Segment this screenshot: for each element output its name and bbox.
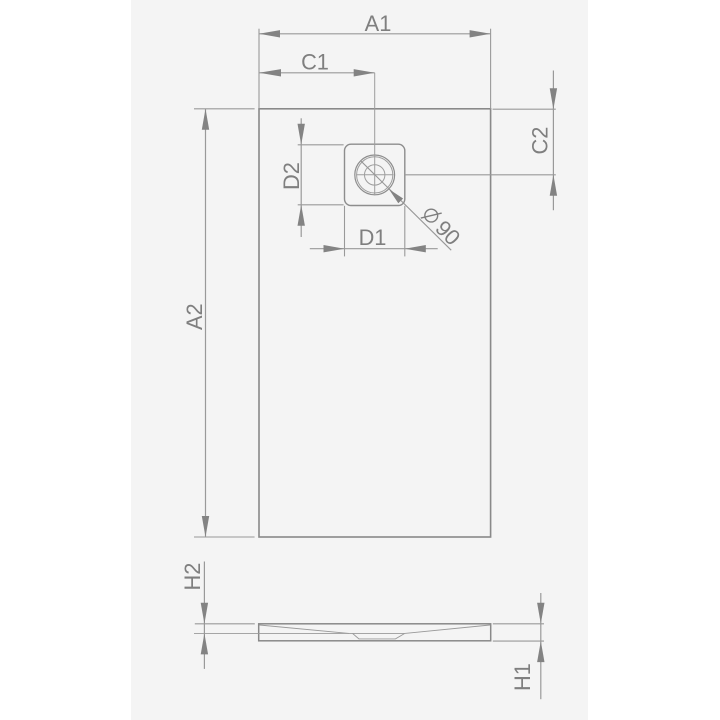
- svg-text:D2: D2: [279, 162, 304, 190]
- svg-text:A2: A2: [182, 303, 207, 330]
- svg-text:C1: C1: [301, 50, 329, 75]
- svg-text:H2: H2: [180, 563, 205, 591]
- svg-text:A1: A1: [365, 11, 392, 36]
- svg-text:C2: C2: [528, 127, 553, 155]
- svg-text:D1: D1: [359, 225, 387, 250]
- svg-text:H1: H1: [510, 663, 535, 691]
